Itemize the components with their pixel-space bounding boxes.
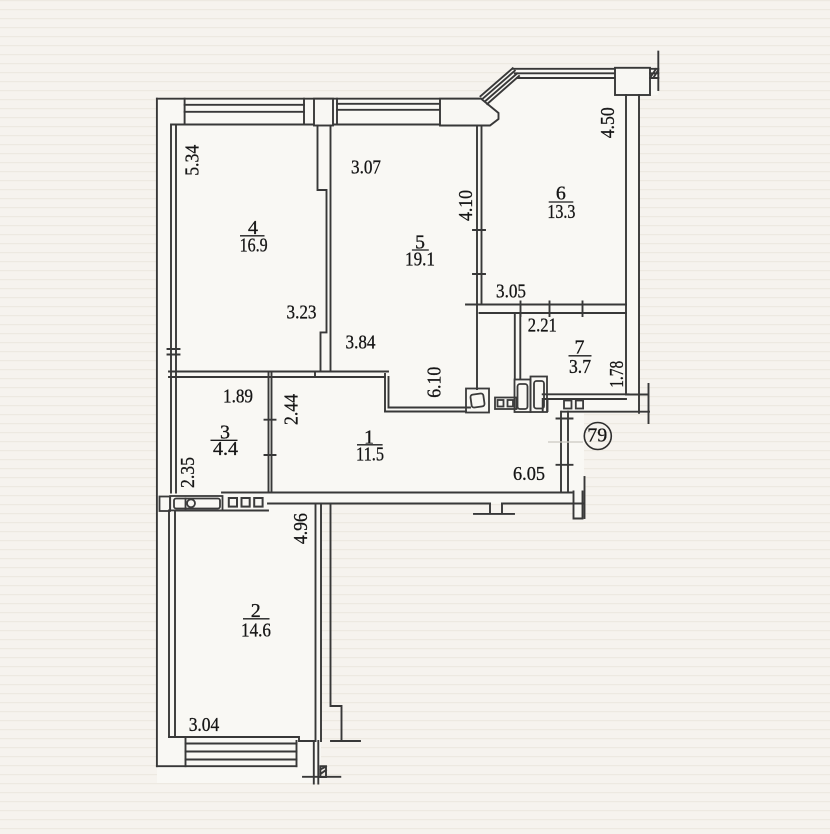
svg-text:79: 79 — [587, 425, 607, 447]
svg-text:1.78: 1.78 — [606, 361, 628, 388]
svg-text:3.04: 3.04 — [189, 714, 220, 736]
svg-text:5.34: 5.34 — [181, 145, 203, 176]
svg-text:19.1: 19.1 — [405, 249, 435, 271]
svg-text:1.89: 1.89 — [223, 386, 253, 408]
svg-text:16.9: 16.9 — [240, 235, 268, 257]
svg-text:13.3: 13.3 — [547, 201, 575, 223]
svg-text:3.84: 3.84 — [346, 332, 376, 354]
svg-text:3.7: 3.7 — [569, 356, 591, 378]
svg-text:11.5: 11.5 — [356, 444, 384, 466]
svg-text:3.07: 3.07 — [351, 157, 381, 179]
svg-text:4.10: 4.10 — [455, 190, 477, 221]
svg-text:3.05: 3.05 — [496, 281, 526, 303]
svg-text:2.44: 2.44 — [281, 394, 303, 425]
svg-text:4.96: 4.96 — [290, 513, 312, 544]
svg-text:2.21: 2.21 — [528, 315, 557, 337]
svg-text:6.05: 6.05 — [513, 463, 545, 485]
svg-text:4.50: 4.50 — [597, 107, 619, 138]
svg-text:4.4: 4.4 — [213, 438, 238, 460]
svg-text:2.35: 2.35 — [177, 457, 199, 488]
svg-text:6.10: 6.10 — [424, 367, 446, 398]
svg-text:3.23: 3.23 — [287, 302, 317, 324]
svg-text:14.6: 14.6 — [241, 620, 271, 642]
